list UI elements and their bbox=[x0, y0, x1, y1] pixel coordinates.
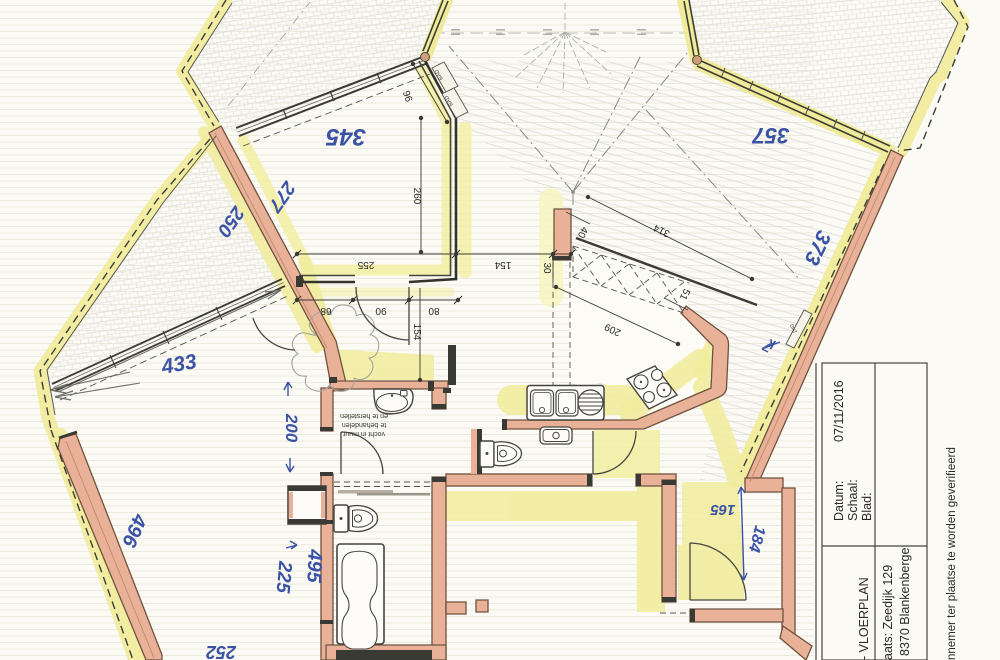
svg-text:154: 154 bbox=[494, 259, 511, 270]
svg-text:260: 260 bbox=[411, 188, 422, 205]
svg-text:68: 68 bbox=[320, 305, 332, 316]
svg-text:495: 495 bbox=[302, 548, 325, 584]
svg-text:- VLOERPLAN: - VLOERPLAN bbox=[857, 577, 871, 660]
svg-text:225: 225 bbox=[272, 559, 296, 594]
svg-text:nnemer ter plaatse te worden g: nnemer ter plaatse te worden geverifieer… bbox=[946, 447, 958, 660]
svg-text:252: 252 bbox=[206, 642, 237, 660]
svg-text:Blad:: Blad: bbox=[860, 493, 874, 522]
svg-text:345: 345 bbox=[325, 123, 366, 150]
svg-text:80: 80 bbox=[428, 305, 440, 316]
svg-text:30: 30 bbox=[541, 262, 552, 274]
svg-text:Schaal:: Schaal: bbox=[846, 479, 860, 521]
svg-text:357: 357 bbox=[751, 123, 789, 148]
svg-text:90: 90 bbox=[375, 305, 387, 316]
svg-text:154: 154 bbox=[411, 324, 422, 341]
svg-text:te behandelen: te behandelen bbox=[342, 421, 386, 428]
svg-text:8370 Blankenberge: 8370 Blankenberge bbox=[898, 548, 912, 656]
svg-text:07/11/2016: 07/11/2016 bbox=[832, 380, 846, 442]
svg-text:165: 165 bbox=[710, 501, 736, 518]
svg-text:en te herstellen: en te herstellen bbox=[340, 412, 388, 419]
svg-text:vocht in muur: vocht in muur bbox=[342, 430, 385, 437]
svg-text:200: 200 bbox=[282, 413, 301, 443]
svg-text:aats: Zeedijk 129: aats: Zeedijk 129 bbox=[881, 565, 895, 660]
svg-text:255: 255 bbox=[357, 259, 374, 270]
svg-text:Datum:: Datum: bbox=[832, 481, 846, 521]
